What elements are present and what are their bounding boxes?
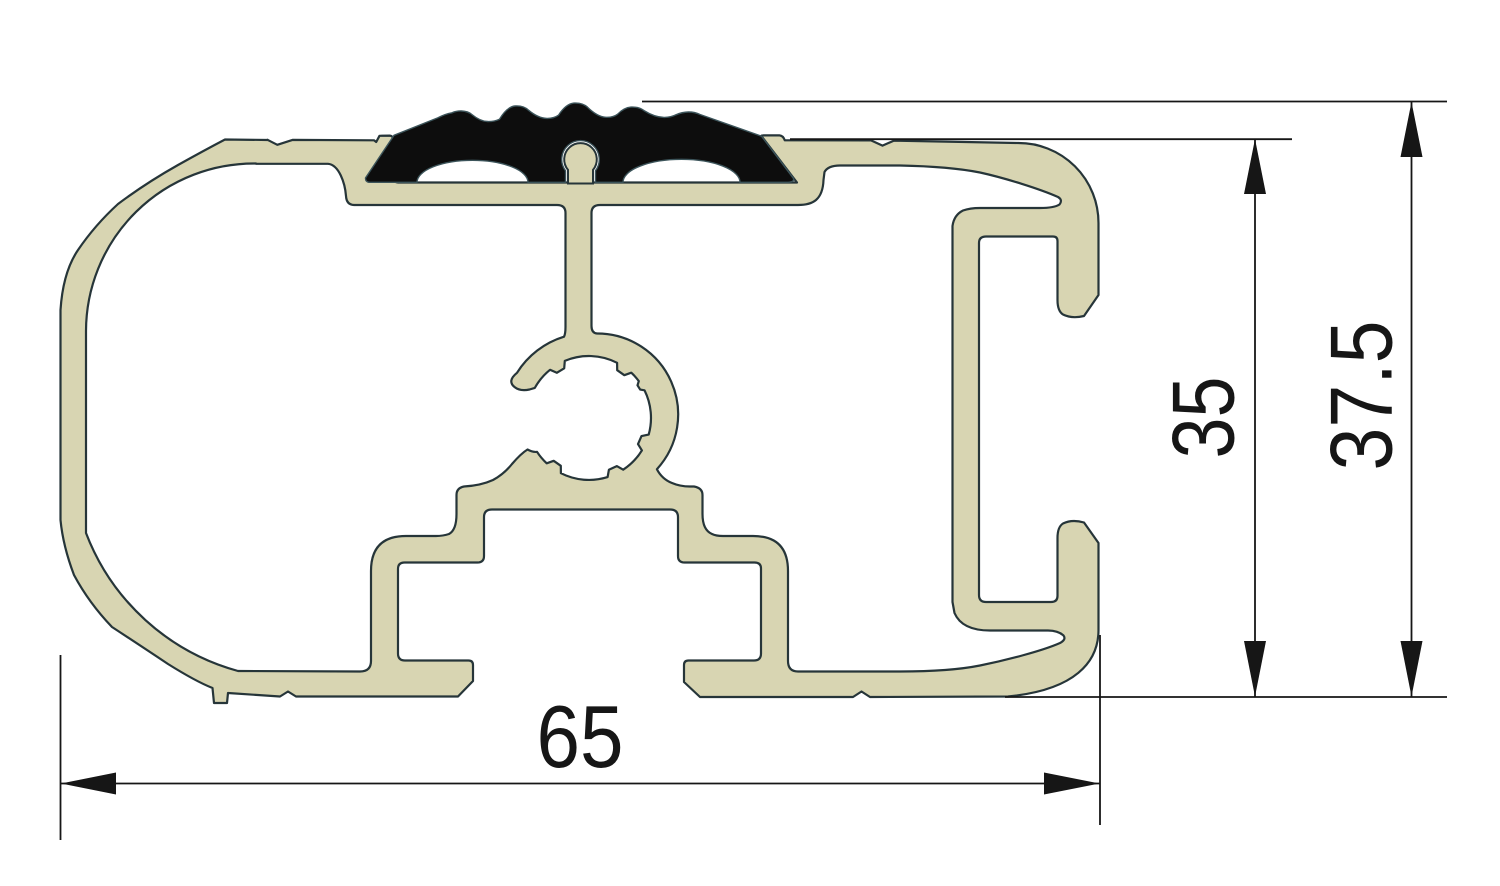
- svg-text:65: 65: [537, 687, 624, 786]
- svg-text:35: 35: [1154, 377, 1253, 459]
- svg-text:37.5: 37.5: [1312, 321, 1411, 471]
